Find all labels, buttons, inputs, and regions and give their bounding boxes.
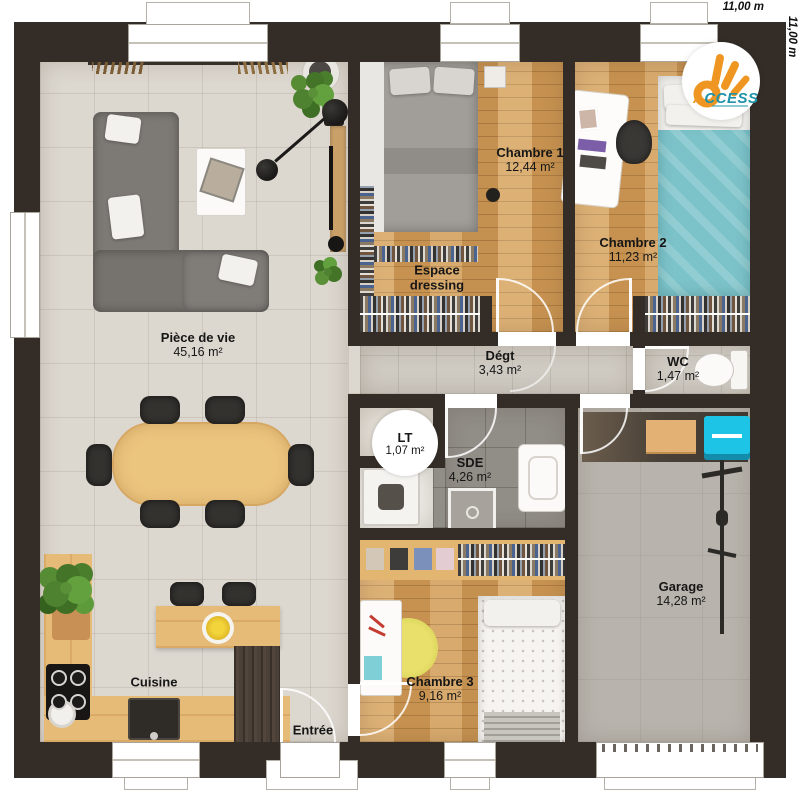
room-name: Cuisine: [131, 674, 178, 689]
label-degt: Dégt 3,43 m²: [479, 348, 521, 378]
bicycle-icon: [698, 452, 746, 642]
plant-pot: [309, 61, 331, 83]
label-espace-dressing: Espace dressing: [405, 263, 469, 294]
keyboard-icon: [579, 155, 606, 170]
room-name: Entrée: [293, 722, 333, 737]
teal-paper-icon: [364, 656, 382, 680]
dressing-rack-left: [360, 186, 374, 296]
sink-faucet-icon: [150, 732, 158, 740]
window-mullion: [24, 213, 26, 337]
wall-living-bedroom1: [348, 62, 360, 346]
room-area: 3,43 m²: [479, 363, 521, 378]
folded-clothes: [390, 548, 408, 570]
label-wc: WC 1,47 m²: [657, 354, 699, 384]
shower-drain-icon: [466, 506, 479, 519]
sofa-pillow: [108, 194, 145, 240]
wall-garage-west: [565, 408, 578, 742]
bed3-pillow: [484, 600, 560, 626]
wall-hallway-south: [348, 394, 750, 408]
label-cuisine: Cuisine: [131, 674, 178, 689]
room-name: Chambre 2: [599, 235, 666, 250]
garage-access-door: [580, 394, 630, 408]
plant-icon: [324, 268, 332, 276]
room-area: 1,47 m²: [657, 369, 699, 384]
floor-plan-page: Pièce de vie 45,16 m² Chambre 1 12,44 m²…: [0, 0, 800, 800]
tool-chest-handle-icon: [712, 434, 742, 438]
label-chambre1: Chambre 1 12,44 m²: [496, 145, 563, 175]
tv-screen: [329, 146, 333, 230]
room-name: LT: [398, 430, 413, 445]
dining-chair: [86, 444, 112, 486]
shutter-box: [450, 2, 510, 24]
label-chambre2: Chambre 2 11,23 m²: [599, 235, 666, 265]
folded-clothes: [414, 548, 432, 570]
flower-bouquet-icon: [206, 616, 230, 640]
vanity-sink-icon: [528, 456, 558, 500]
dressing-rack-row: [360, 296, 480, 334]
dimension-height: 11,00 m: [786, 16, 798, 57]
wall-dressing-stub: [480, 296, 492, 346]
kitchen-plant-pot: [52, 594, 90, 640]
room-name: Garage: [656, 579, 705, 594]
room-name: Espace dressing: [405, 263, 469, 294]
label-garage: Garage 14,28 m²: [656, 579, 705, 609]
photo-icon: [577, 107, 599, 131]
burner-icon: [51, 670, 67, 686]
window-mullion: [441, 42, 519, 44]
garage-door-ticks: [602, 744, 758, 752]
dining-chair: [140, 500, 180, 528]
room-name: Dégt: [479, 348, 521, 363]
dimension-width: 11,00 m: [634, 1, 764, 13]
pendant-lamp-icon: [256, 159, 278, 181]
window-mullion: [129, 42, 267, 44]
burner-icon: [51, 694, 67, 710]
shower-room-floor-ext: [433, 468, 445, 528]
access-logo: ACCESS: [682, 42, 760, 120]
sofa-pillow: [104, 114, 141, 144]
entrance-door: [280, 742, 340, 778]
wall-closet-stub: [633, 296, 645, 332]
bed3-blanket: [484, 712, 560, 742]
bedroom2-door: [576, 332, 630, 346]
bed2-duvet-teal: [658, 130, 750, 306]
wall-right: [750, 22, 786, 778]
room-area: 11,23 m²: [599, 250, 666, 265]
room-name: Chambre 3: [406, 674, 473, 689]
room-name: Chambre 1: [496, 145, 563, 160]
speaker-icon: [328, 236, 344, 252]
bed1-pillow: [389, 67, 431, 96]
bedroom1-stool-icon: [486, 188, 500, 202]
burner-icon: [70, 694, 86, 710]
bar-stool: [170, 582, 204, 606]
dining-chair: [288, 444, 314, 486]
window-mullion: [445, 759, 495, 761]
wall-left: [14, 22, 40, 778]
nightstand: [484, 66, 506, 88]
dining-chair: [205, 396, 245, 424]
wall-bedroom3-north: [360, 528, 565, 540]
pendant-lamp-icon: [322, 99, 348, 125]
room-name: Pièce de vie: [161, 330, 235, 345]
folded-clothes: [436, 548, 454, 570]
living-degt-opening-floor: [348, 346, 360, 394]
kitchen-plant-icon: [60, 582, 72, 594]
room-area: 9,16 m²: [406, 689, 473, 704]
dressing-rod: [360, 313, 480, 315]
room-area: 12,44 m²: [496, 160, 563, 175]
room-area: 1,07 m²: [386, 445, 425, 457]
room-area: 14,28 m²: [656, 594, 705, 609]
bedroom2-closet: [645, 296, 750, 334]
dining-chair: [205, 500, 245, 528]
room-area: 4,26 m²: [449, 470, 491, 485]
dressing-rack-row: [374, 246, 478, 262]
window-mullion: [113, 759, 199, 761]
tall-cabinet: [234, 646, 280, 742]
wall-bedroom1-bedroom2: [563, 62, 575, 346]
label-sde: SDE 4,26 m²: [449, 455, 491, 485]
label-piece-de-vie: Pièce de vie 45,16 m²: [161, 330, 235, 360]
bedroom3-door: [348, 684, 360, 736]
shutter-box: [146, 2, 250, 26]
bed1-fold: [384, 148, 478, 174]
label-lt-circle: LT 1,07 m²: [372, 410, 438, 476]
bedroom3-closet-rod: [458, 558, 565, 560]
room-name: SDE: [449, 455, 491, 470]
bed1-pillow: [433, 67, 475, 96]
label-entree: Entrée: [293, 722, 333, 737]
burner-icon: [70, 670, 86, 686]
room-name: WC: [657, 354, 699, 369]
access-logo-text: ACCESS: [692, 90, 759, 107]
folded-clothes: [366, 548, 384, 570]
plant-icon: [308, 88, 318, 98]
access-logo-hand-icon: ACCESS: [682, 42, 760, 120]
wc-door: [633, 348, 645, 390]
dining-chair: [140, 396, 180, 424]
washing-machine-door-icon: [378, 484, 404, 510]
desk-chair: [616, 120, 652, 164]
label-chambre3: Chambre 3 9,16 m²: [406, 674, 473, 704]
bedroom3-hanging-clothes: [458, 544, 565, 576]
bedroom1-door: [498, 332, 556, 346]
bedroom2-closet-rod: [645, 313, 750, 315]
toilet-bowl: [694, 353, 734, 387]
dining-table: [112, 422, 294, 506]
wood-box: [646, 420, 696, 454]
shower-room-door: [445, 394, 497, 408]
bar-stool: [222, 582, 256, 606]
room-area: 45,16 m²: [161, 345, 235, 360]
tool-chest: [704, 416, 750, 460]
